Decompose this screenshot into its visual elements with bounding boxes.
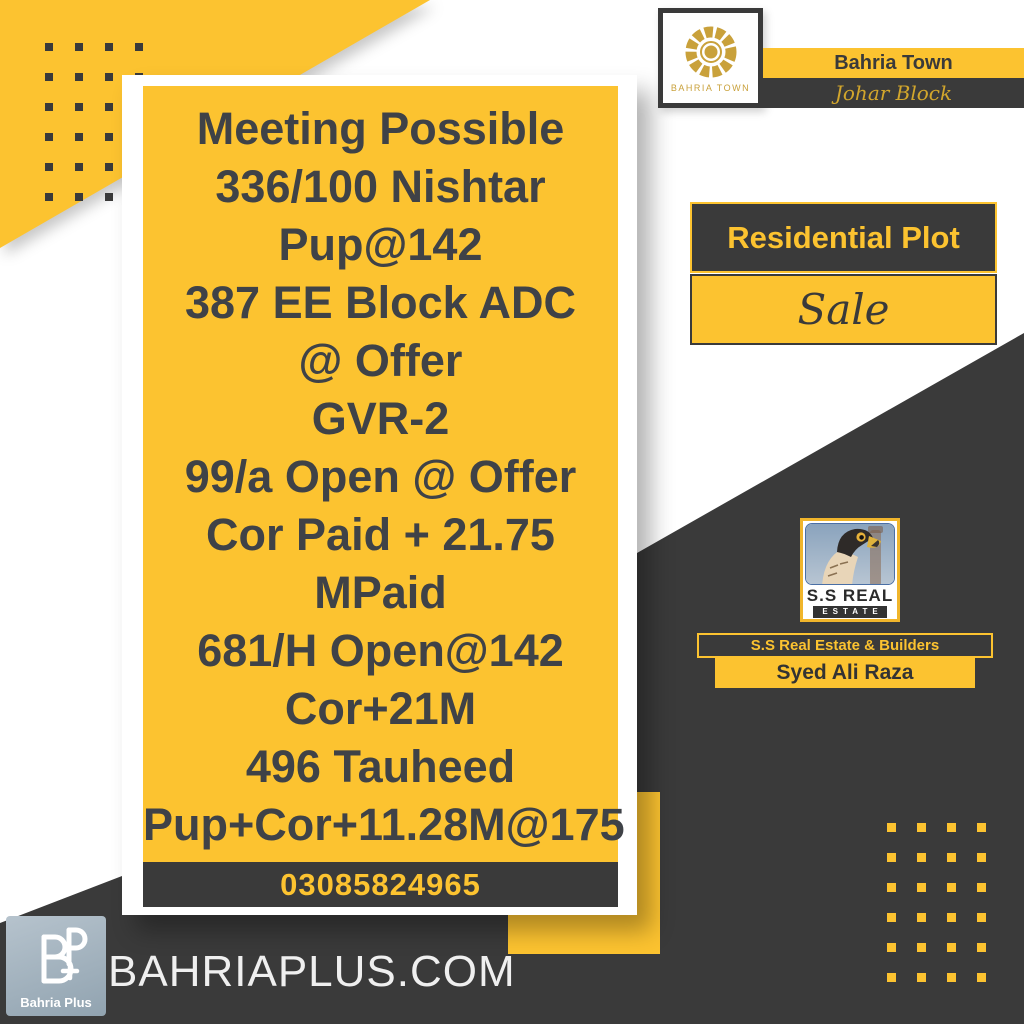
listing-line: @ Offer	[143, 332, 618, 390]
bahria-town-name: Bahria Town	[834, 52, 953, 75]
falcon-logo-image	[805, 523, 895, 585]
bahria-town-logo: BAHRIA TOWN	[658, 8, 763, 108]
listing-line: MPaid	[143, 564, 618, 622]
listing-line: Pup+Cor+11.28M@175	[143, 796, 618, 854]
bahria-town-emblem-icon	[683, 24, 739, 80]
phone-number-bar: 03085824965	[143, 862, 618, 907]
ss-real-estate-logo: S.S REAL ESTATE	[800, 518, 900, 622]
johar-block-bar: Johar Block	[763, 78, 1024, 108]
plot-type-banner: Residential Plot	[690, 202, 997, 273]
agency-name-bar: S.S Real Estate & Builders	[697, 633, 993, 658]
website-url: BAHRIAPLUS.COM	[108, 947, 516, 997]
sale-banner: Sale	[690, 274, 997, 345]
phone-number: 03085824965	[280, 867, 481, 903]
dot-grid-icon	[887, 823, 987, 983]
ss-logo-subtitle: ESTATE	[813, 606, 886, 618]
listing-line: 681/H Open@142	[143, 622, 618, 680]
bahria-plus-label: Bahria Plus	[20, 995, 92, 1010]
bahria-plus-monogram-icon	[24, 924, 88, 988]
bahria-town-logo-caption: BAHRIA TOWN	[671, 83, 750, 93]
listing-card: Meeting Possible 336/100 Nishtar Pup@142…	[122, 75, 637, 915]
listing-line: 336/100 Nishtar	[143, 158, 618, 216]
plot-type-label: Residential Plot	[727, 220, 960, 256]
poster: Meeting Possible 336/100 Nishtar Pup@142…	[0, 0, 1024, 1024]
listing-text-panel: Meeting Possible 336/100 Nishtar Pup@142…	[143, 86, 618, 862]
listing-line: 99/a Open @ Offer	[143, 448, 618, 506]
listing-line: 496 Tauheed	[143, 738, 618, 796]
ss-logo-title: S.S REAL	[807, 586, 893, 606]
agency-name: S.S Real Estate & Builders	[751, 637, 939, 654]
listing-line: Pup@142	[143, 216, 618, 274]
bahria-town-name-bar: Bahria Town	[763, 48, 1024, 78]
agent-name-bar: Syed Ali Raza	[715, 658, 975, 688]
listing-line: 387 EE Block ADC	[143, 274, 618, 332]
bahria-plus-logo: Bahria Plus	[6, 916, 106, 1016]
sale-label: Sale	[797, 285, 889, 334]
listing-line: Meeting Possible	[143, 100, 618, 158]
listing-line: GVR-2	[143, 390, 618, 448]
listing-line: Cor Paid + 21.75	[143, 506, 618, 564]
block-name: Johar Block	[835, 81, 952, 105]
listing-line: Cor+21M	[143, 680, 618, 738]
agent-name: Syed Ali Raza	[777, 661, 914, 685]
